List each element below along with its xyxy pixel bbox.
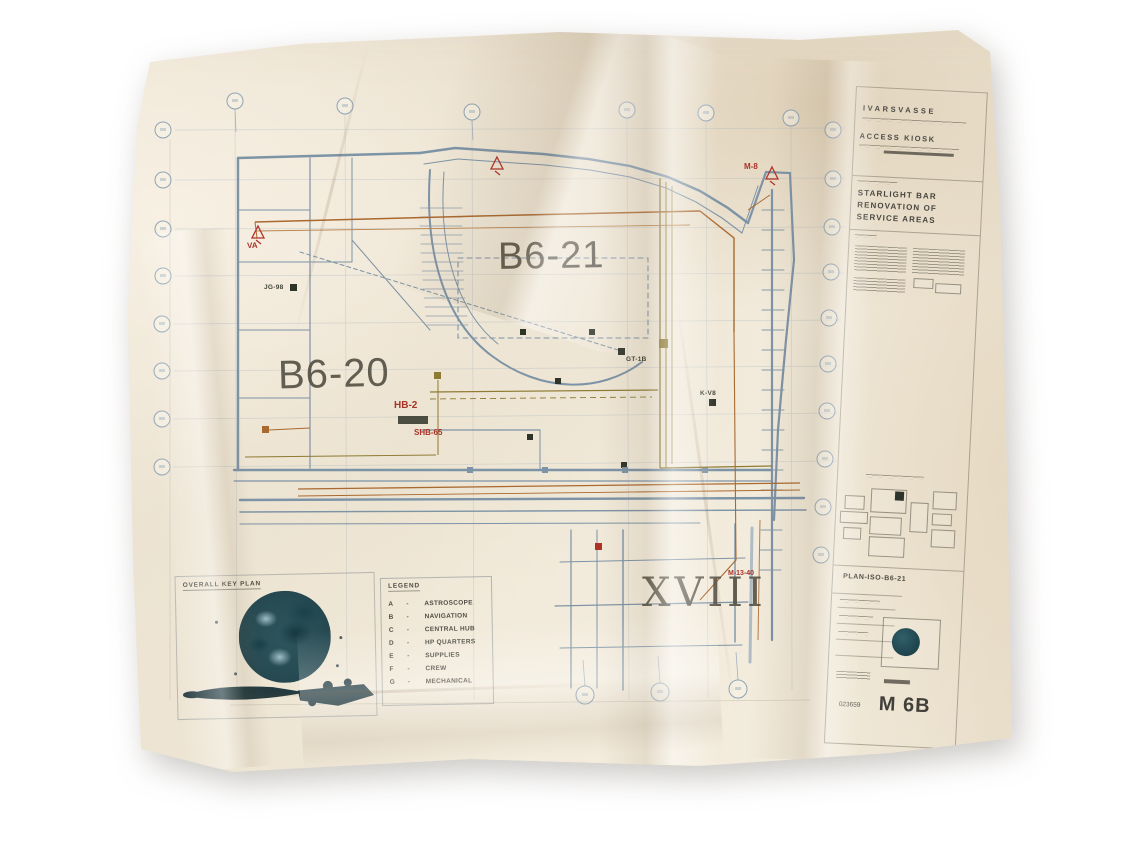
plan-reference: PLAN-ISO-B6-21: [843, 573, 907, 583]
piping-olive: [245, 178, 772, 468]
station-map-circle: [238, 590, 332, 684]
legend-row: A - ASTROSCOPE: [388, 599, 488, 613]
module-box-2: [840, 511, 869, 524]
legend-key: A: [388, 601, 393, 608]
legend-key: G: [390, 679, 395, 686]
module-box-10: [931, 529, 956, 548]
legend-label: ASTROSCOPE: [424, 599, 473, 607]
legend-key: B: [389, 614, 394, 621]
legend: LEGEND A - ASTROSCOPE B - NAVIGATION C -…: [380, 576, 494, 706]
project-title-line3: SERVICE AREAS: [856, 211, 936, 227]
equip-tag-gt-1b: GT-1B: [626, 356, 647, 363]
legend-row: D - HP QUARTERS: [389, 638, 489, 652]
notes-mini-box1: [913, 278, 933, 289]
module-box-5: [869, 516, 902, 536]
legend-label: CREW: [425, 665, 446, 672]
key-plan-title: OVERALL KEY PLAN: [183, 580, 261, 591]
legend-separator: -: [407, 626, 410, 633]
legend-key: C: [389, 627, 394, 634]
legend-separator: -: [407, 639, 410, 646]
signature-bar: [884, 679, 910, 684]
tag-shb-65: SHB-65: [414, 428, 442, 437]
zone-label-b6-20: B6-20: [277, 351, 390, 399]
module-box-4-fill: [895, 491, 904, 500]
firm-subtext: [862, 117, 966, 125]
table-rule-2: [837, 607, 895, 611]
table-text-2: [839, 615, 873, 620]
sheet-number: M 6B: [878, 693, 931, 719]
paper-shadow: B6-20 B6-21 XVIII VA M-8 HB-2 SHB-65 M-1…: [0, 0, 1124, 863]
legend-separator: -: [406, 600, 409, 607]
zone-label-b6-21: B6-21: [498, 234, 605, 279]
legend-row: F - CREW: [389, 664, 489, 678]
firm-dept: ACCESS KIOSK: [859, 131, 936, 144]
divider-rule-3: [834, 564, 964, 571]
module-box-7: [909, 502, 928, 533]
legend-label: CENTRAL HUB: [425, 625, 475, 633]
valve-tag-va: VA: [247, 241, 258, 250]
legend-key: F: [389, 666, 393, 673]
paper-crease-line: [294, 44, 369, 336]
notes-text-col2: [912, 248, 965, 277]
overall-key-plan: OVERALL KEY PLAN: [175, 572, 378, 720]
table-text-3: [838, 631, 868, 635]
equip-tag-jg-98: JG-98: [264, 284, 284, 291]
legend-row: G - MECHANICAL: [390, 677, 490, 691]
legend-row: C - CENTRAL HUB: [389, 625, 489, 639]
legend-row: B - NAVIGATION: [389, 612, 489, 626]
micro-caption-1: [857, 180, 897, 185]
blueprint-paper: B6-20 B6-21 XVIII VA M-8 HB-2 SHB-65 M-1…: [0, 0, 1124, 863]
legend-label: HP QUARTERS: [425, 638, 476, 646]
corridor-nodes: [467, 467, 708, 473]
stamp-number: 023659: [839, 701, 861, 709]
module-box-3: [843, 527, 862, 540]
legend-title: LEGEND: [388, 582, 420, 592]
paper-crease: [387, 0, 733, 362]
table-rule-1: [832, 592, 902, 596]
module-box-9: [932, 513, 953, 526]
module-box-6: [868, 536, 905, 558]
legend-separator: -: [407, 613, 410, 620]
legend-row: E - SUPPLIES: [389, 651, 489, 665]
tag-hb-2: HB-2: [394, 400, 417, 411]
module-box-8: [932, 491, 957, 510]
legend-key: E: [389, 653, 394, 660]
tag-m-13-40: M-13-40: [728, 570, 754, 577]
notes-caption: [855, 234, 877, 238]
module-detail-caption: [866, 474, 924, 480]
notes-text-col3: [853, 277, 906, 294]
table-text-1: [840, 599, 880, 604]
equip-tag-k-v8: K-V8: [700, 390, 716, 397]
legend-separator: -: [407, 652, 410, 659]
table-text-4: [836, 671, 870, 681]
photo-of-blueprint: B6-20 B6-21 XVIII VA M-8 HB-2 SHB-65 M-1…: [0, 0, 1124, 863]
valve-tag-m8: M-8: [744, 162, 758, 171]
legend-label: MECHANICAL: [426, 677, 473, 685]
module-box-1: [844, 495, 865, 510]
firm-name: IVARSVASSE: [863, 103, 937, 116]
legend-separator: -: [407, 665, 410, 672]
title-block: IVARSVASSE ACCESS KIOSK STARLIGHT BAR RE…: [824, 86, 988, 750]
legend-key: D: [389, 640, 394, 647]
legend-label: NAVIGATION: [425, 612, 468, 620]
paper-crease-line: [676, 302, 737, 718]
legend-label: SUPPLIES: [425, 652, 460, 660]
notes-mini-box2: [935, 283, 961, 294]
legend-separator: -: [408, 678, 411, 685]
notes-text-col1: [854, 245, 907, 274]
dept-underline: [884, 150, 954, 156]
